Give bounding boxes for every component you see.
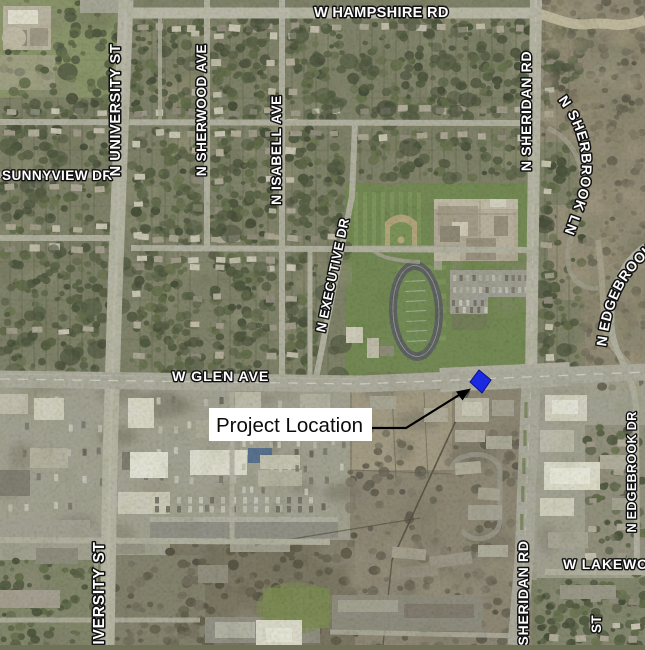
svg-text:N SHERIDAN RD: N SHERIDAN RD	[519, 51, 535, 172]
svg-text:N SHERWOOD AVE: N SHERWOOD AVE	[194, 44, 209, 176]
svg-text:ST: ST	[589, 615, 604, 633]
svg-text:N UNIVERSITY ST: N UNIVERSITY ST	[108, 44, 124, 177]
svg-text:W LAKEWOOD: W LAKEWOOD	[563, 556, 645, 572]
svg-text:SUNNYVIEW DR: SUNNYVIEW DR	[2, 168, 113, 183]
svg-text:SHERIDAN RD: SHERIDAN RD	[516, 540, 532, 645]
svg-text:W GLEN AVE: W GLEN AVE	[172, 369, 269, 385]
svg-text:W HAMPSHIRE RD: W HAMPSHIRE RD	[314, 5, 449, 21]
svg-text:Project Location: Project Location	[216, 414, 363, 437]
svg-text:UNIVERSITY ST: UNIVERSITY ST	[91, 541, 108, 645]
svg-text:N EDGEBROOK DR: N EDGEBROOK DR	[625, 411, 639, 532]
svg-text:N ISABELL AVE: N ISABELL AVE	[269, 95, 284, 205]
